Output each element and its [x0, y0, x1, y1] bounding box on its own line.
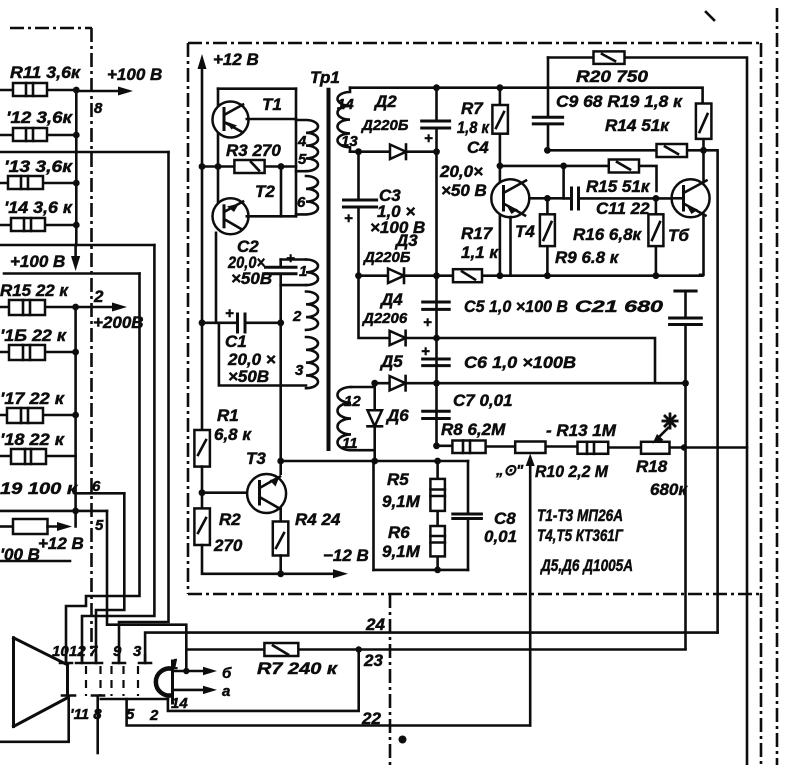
svg-text:24: 24	[365, 615, 385, 634]
svg-text:5: 5	[298, 151, 307, 168]
svg-text:5: 5	[95, 517, 104, 534]
svg-text:R14 51к: R14 51к	[605, 116, 670, 135]
svg-text:+: +	[423, 314, 432, 331]
svg-text:0,01: 0,01	[484, 527, 517, 546]
svg-text:2: 2	[292, 308, 302, 325]
svg-text:Д5: Д5	[379, 352, 403, 371]
svg-text:- R13 1М: - R13 1М	[546, 421, 617, 440]
svg-text:12: 12	[344, 393, 361, 410]
svg-text:Д220Б: Д220Б	[360, 117, 409, 134]
svg-text:Т4,Т5 КТ361Г: Т4,Т5 КТ361Г	[537, 526, 624, 545]
svg-text:6,8 к: 6,8 к	[214, 425, 252, 444]
svg-text:4: 4	[297, 133, 307, 150]
svg-text:R16 6,8к: R16 6,8к	[573, 225, 643, 244]
svg-text:Т1: Т1	[262, 95, 282, 114]
svg-text:+200В: +200В	[93, 313, 144, 332]
svg-text:R4 24: R4 24	[295, 510, 341, 529]
svg-text:Тр1: Тр1	[310, 68, 340, 87]
svg-text:R9 6.8 к: R9 6.8 к	[555, 248, 620, 267]
svg-text:9,1М: 9,1М	[382, 492, 421, 511]
svg-text:6: 6	[297, 194, 306, 211]
svg-text:8: 8	[94, 100, 103, 117]
svg-text:20,0×: 20,0×	[439, 162, 483, 181]
svg-text:Т4: Т4	[515, 222, 535, 241]
svg-text:1: 1	[299, 263, 307, 280]
svg-text:14: 14	[337, 96, 354, 113]
svg-text:б: б	[222, 665, 232, 682]
svg-text:12: 12	[69, 643, 86, 660]
svg-text:×50В: ×50В	[228, 367, 269, 386]
svg-text:+12 В: +12 В	[38, 534, 84, 553]
svg-text:R18: R18	[636, 457, 668, 476]
svg-text:Д2: Д2	[373, 92, 397, 111]
svg-text:С5 1,0 ×100 В: С5 1,0 ×100 В	[464, 297, 568, 316]
svg-text:R5: R5	[387, 470, 409, 489]
svg-text:R10 2,2 М: R10 2,2 М	[535, 462, 609, 481]
svg-text:С1: С1	[225, 332, 247, 351]
svg-text:'00 В: '00 В	[0, 545, 40, 564]
svg-text:3: 3	[295, 362, 304, 379]
svg-text:680к: 680к	[650, 480, 688, 499]
svg-text:1,1 к: 1,1 к	[461, 243, 499, 262]
svg-text:R7: R7	[461, 99, 484, 118]
svg-text:2: 2	[149, 707, 159, 724]
svg-text:С11 22: С11 22	[596, 199, 650, 218]
svg-text:С21 680: С21 680	[575, 297, 664, 316]
svg-text:+: +	[421, 343, 430, 360]
svg-text:19 100 к: 19 100 к	[0, 479, 79, 498]
svg-text:'12 3,6к: '12 3,6к	[6, 108, 74, 127]
svg-text:'1Б 22 к: '1Б 22 к	[0, 326, 67, 345]
svg-text:2: 2	[93, 287, 104, 306]
svg-text:Д4: Д4	[379, 290, 403, 309]
svg-text:R11 3,6к: R11 3,6к	[10, 63, 81, 82]
svg-text:R17: R17	[461, 224, 494, 243]
svg-text:Д5,Д6 Д1005А: Д5,Д6 Д1005А	[539, 556, 633, 575]
svg-text:Д3: Д3	[394, 231, 418, 250]
svg-text:Д6: Д6	[385, 406, 409, 425]
svg-text:+: +	[225, 305, 234, 322]
svg-text:+12 В: +12 В	[213, 50, 259, 69]
svg-text:С6 1,0 ×100В: С6 1,0 ×100В	[464, 353, 576, 372]
svg-text:9: 9	[113, 643, 122, 660]
svg-text:а: а	[222, 683, 230, 700]
svg-text:R15 51к: R15 51к	[586, 177, 651, 196]
svg-text:×50В: ×50В	[231, 269, 272, 288]
svg-text:R2: R2	[219, 510, 241, 529]
svg-text:13: 13	[341, 133, 358, 150]
svg-text:270: 270	[213, 536, 243, 555]
svg-text:7: 7	[89, 643, 98, 660]
svg-text:Д2206: Д2206	[361, 310, 408, 327]
svg-text:Д220Б: Д220Б	[362, 249, 411, 266]
svg-text:R6: R6	[388, 523, 410, 542]
svg-text:R1: R1	[217, 406, 239, 425]
svg-text:С4: С4	[467, 138, 489, 157]
svg-text:10: 10	[52, 643, 69, 660]
svg-text:Т3: Т3	[246, 449, 266, 468]
svg-text:Т2: Т2	[255, 182, 275, 201]
svg-text:1,8 к: 1,8 к	[457, 118, 490, 137]
svg-text:'17 22 к: '17 22 к	[0, 389, 65, 408]
svg-text:23: 23	[363, 651, 383, 670]
svg-text:+100 В: +100 В	[107, 65, 162, 84]
svg-text:'14 3,6 к: '14 3,6 к	[4, 198, 73, 217]
svg-text:'13 3,6к: '13 3,6к	[4, 157, 74, 176]
svg-text:−12 В: −12 В	[323, 546, 369, 565]
svg-text:R7 240 к: R7 240 к	[257, 659, 339, 678]
svg-text:'18 22 к: '18 22 к	[0, 430, 65, 449]
svg-text:Т1-Т3 МП26А: Т1-Т3 МП26А	[537, 506, 623, 525]
svg-text:„⊙": „⊙"	[495, 462, 524, 479]
svg-text:R8 6,2М: R8 6,2М	[441, 420, 506, 439]
svg-text:R15 22 к: R15 22 к	[0, 281, 69, 300]
svg-text:С8: С8	[494, 509, 516, 528]
svg-text:11: 11	[342, 435, 358, 452]
svg-text:+: +	[424, 130, 433, 147]
svg-text:Тб: Тб	[668, 226, 689, 245]
svg-text:3: 3	[133, 643, 142, 660]
svg-text:R20 750: R20 750	[576, 67, 649, 86]
svg-text:С9 68 R19 1,8 к: С9 68 R19 1,8 к	[556, 92, 683, 111]
svg-text:9,1М: 9,1М	[382, 542, 421, 561]
svg-text:14: 14	[171, 695, 188, 712]
svg-text:+100 В: +100 В	[10, 252, 65, 271]
svg-text:R3 270: R3 270	[226, 141, 281, 160]
svg-text:+: +	[344, 210, 353, 227]
svg-text:'11 8: '11 8	[70, 706, 102, 723]
svg-text:С7 0,01: С7 0,01	[453, 391, 513, 410]
svg-text:×50 В: ×50 В	[441, 181, 487, 200]
